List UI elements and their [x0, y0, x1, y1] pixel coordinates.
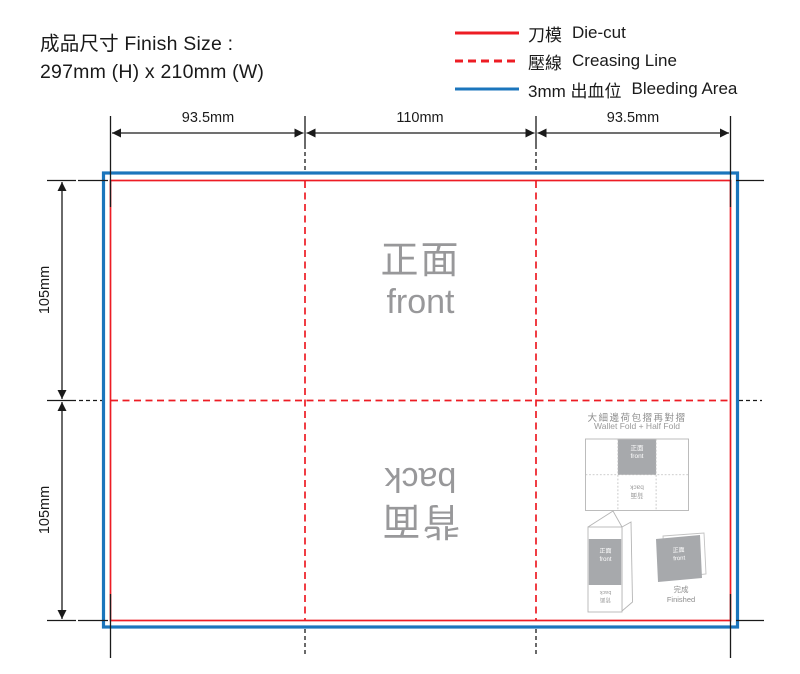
mini-guide-title-en: Wallet Fold + Half Fold	[594, 421, 680, 431]
finish-size-label: 成品尺寸 Finish Size :	[40, 30, 264, 58]
finished-caption-zh: 完成	[667, 585, 695, 595]
front-panel-en: front	[305, 285, 536, 319]
finish-size-value: 297mm (H) x 210mm (W)	[40, 58, 264, 86]
legend-row-die-cut: 刀模 Die-cut	[455, 19, 737, 47]
back-panel-label: 背面 back	[305, 462, 536, 539]
dim-label-left-upper: 105mm	[37, 266, 53, 314]
mini-front-label: 正面 front	[618, 445, 656, 461]
legend-die-cut-zh: 刀模	[528, 21, 562, 46]
dim-label-top-center: 110mm	[396, 110, 443, 126]
die-cut-line-icon	[455, 30, 519, 36]
mini-back-zh: 背面	[618, 490, 656, 498]
dim-label-top-right: 93.5mm	[607, 110, 659, 126]
brochure-open-flap	[588, 511, 622, 527]
mini-front-zh: 正面	[618, 445, 656, 453]
mini-back-en: back	[618, 482, 656, 490]
creasing-line-icon	[455, 58, 519, 64]
brochure-back-panel	[622, 522, 633, 611]
mini-front-en: front	[618, 453, 656, 461]
bleeding-line-icon	[455, 86, 519, 92]
legend: 刀模 Die-cut 壓線 Creasing Line 3mm 出血位 Blee…	[455, 19, 737, 103]
finished-front-label: 正面 front	[658, 547, 701, 565]
dim-label-left-lower: 105mm	[37, 486, 53, 534]
legend-creasing-zh: 壓線	[528, 49, 562, 74]
dim-label-top-left: 93.5mm	[182, 110, 234, 126]
back-panel-zh: 背面	[305, 499, 536, 539]
legend-die-cut-en: Die-cut	[572, 23, 626, 43]
mini-back-label: 背面 back	[618, 482, 656, 498]
legend-row-bleeding: 3mm 出血位 Bleeding Area	[455, 75, 737, 103]
front-panel-zh: 正面	[305, 242, 536, 282]
brochure-back-label: 背面 back	[589, 588, 622, 602]
legend-creasing-en: Creasing Line	[572, 51, 677, 71]
back-panel-en: back	[305, 462, 536, 496]
die-cut-template-page: 成品尺寸 Finish Size : 297mm (H) x 210mm (W)…	[0, 0, 800, 674]
top-dimension-lines	[78, 116, 764, 207]
finished-caption-en: Finished	[667, 595, 695, 605]
finished-caption: 完成 Finished	[667, 585, 695, 605]
finish-size-title: 成品尺寸 Finish Size : 297mm (H) x 210mm (W)	[40, 30, 264, 87]
brochure-front-label: 正面 front	[589, 549, 622, 564]
front-panel-label: 正面 front	[305, 242, 536, 319]
legend-bleeding-en: Bleeding Area	[632, 79, 738, 99]
legend-bleeding-zh: 3mm 出血位	[528, 77, 622, 102]
legend-row-creasing: 壓線 Creasing Line	[455, 47, 737, 75]
brochure-back-en: back	[589, 588, 622, 595]
brochure-front-en: front	[589, 557, 622, 565]
brochure-front-zh: 正面	[589, 549, 622, 557]
brochure-back-zh: 背面	[589, 595, 622, 602]
